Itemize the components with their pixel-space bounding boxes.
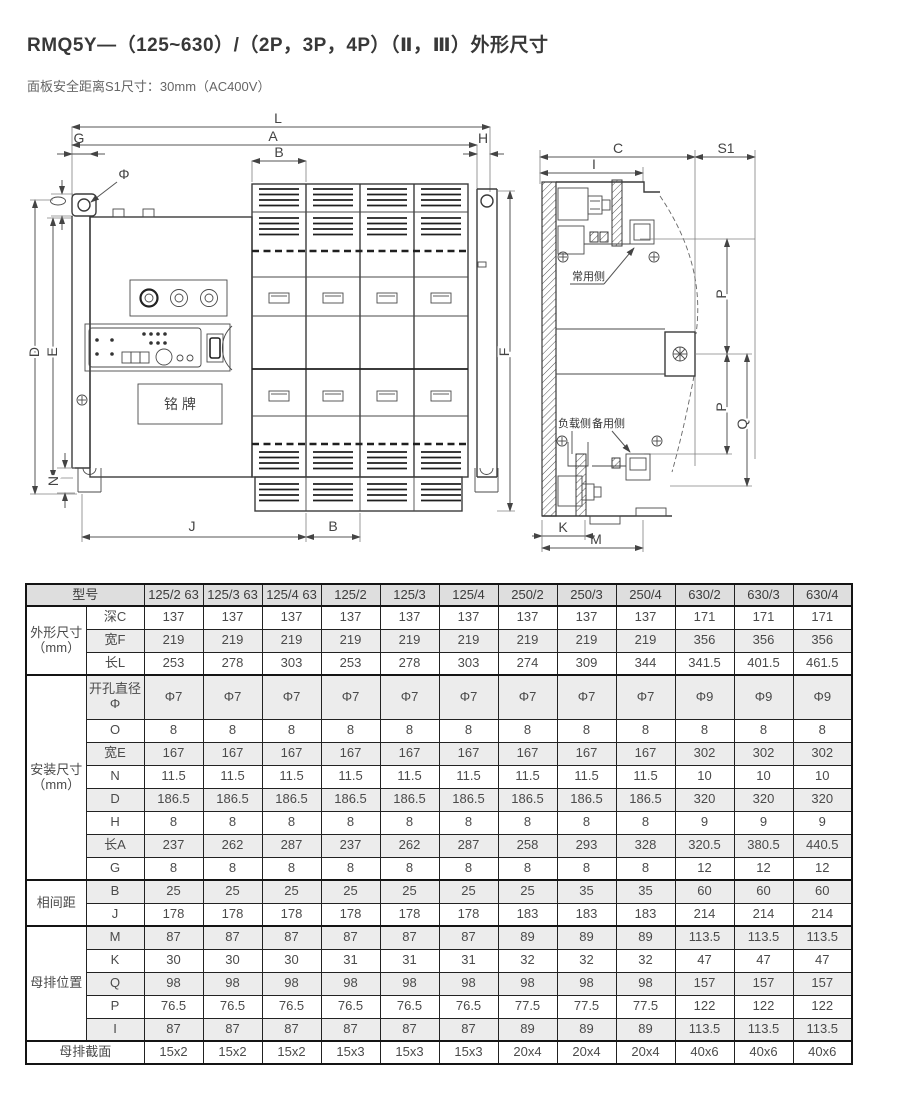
model-column-header: 250/3 xyxy=(557,584,616,606)
value-cell: 186.5 xyxy=(616,788,675,811)
value-cell: 214 xyxy=(734,903,793,926)
value-cell: 89 xyxy=(557,1018,616,1041)
value-cell: 178 xyxy=(321,903,380,926)
value-cell: 171 xyxy=(675,606,734,629)
value-cell: 122 xyxy=(675,995,734,1018)
value-cell: 87 xyxy=(262,926,321,949)
front-view-drawing: L A G H B Φ xyxy=(27,112,512,560)
value-cell: 87 xyxy=(380,1018,439,1041)
value-cell: 87 xyxy=(203,926,262,949)
dim-label-D: D xyxy=(26,347,42,357)
dim-label-H: H xyxy=(478,130,488,146)
value-cell: Φ9 xyxy=(734,675,793,719)
value-cell: 113.5 xyxy=(734,1018,793,1041)
value-cell: 11.5 xyxy=(557,765,616,788)
value-cell: 8 xyxy=(557,811,616,834)
row-label: Q xyxy=(86,972,144,995)
value-cell: 20x4 xyxy=(498,1041,557,1064)
table-row: D186.5186.5186.5186.5186.5186.5186.5186.… xyxy=(26,788,852,811)
model-column-header: 125/4 63 xyxy=(262,584,321,606)
value-cell: 186.5 xyxy=(498,788,557,811)
value-cell: 32 xyxy=(616,949,675,972)
model-column-header: 125/2 63 xyxy=(144,584,203,606)
row-label: 宽F xyxy=(86,629,144,652)
value-cell: Φ7 xyxy=(557,675,616,719)
value-cell: 137 xyxy=(557,606,616,629)
value-cell: 8 xyxy=(144,857,203,880)
value-cell: 35 xyxy=(557,880,616,903)
row-label: N xyxy=(86,765,144,788)
value-cell: 219 xyxy=(203,629,262,652)
value-cell: 98 xyxy=(262,972,321,995)
dim-label-phi: Φ xyxy=(118,166,129,182)
value-cell: 11.5 xyxy=(498,765,557,788)
table-row: H888888888999 xyxy=(26,811,852,834)
value-cell: 31 xyxy=(321,949,380,972)
value-cell: 167 xyxy=(203,742,262,765)
value-cell: 178 xyxy=(144,903,203,926)
page: RMQ5Y—（125~630）/（2P，3P，4P）（Ⅱ，Ⅲ）外形尺寸 面板安全… xyxy=(0,0,900,1105)
value-cell: 253 xyxy=(321,652,380,675)
value-cell: 20x4 xyxy=(616,1041,675,1064)
value-cell: 8 xyxy=(262,811,321,834)
value-cell: 20x4 xyxy=(557,1041,616,1064)
value-cell: 98 xyxy=(498,972,557,995)
row-label: M xyxy=(86,926,144,949)
value-cell: 167 xyxy=(557,742,616,765)
value-cell: 11.5 xyxy=(380,765,439,788)
value-cell: 76.5 xyxy=(321,995,380,1018)
table-row: J178178178178178178183183183214214214 xyxy=(26,903,852,926)
value-cell: 15x2 xyxy=(144,1041,203,1064)
value-cell: 11.5 xyxy=(616,765,675,788)
table-row: 母排位置M878787878787898989113.5113.5113.5 xyxy=(26,926,852,949)
value-cell: 8 xyxy=(203,719,262,742)
value-cell: 178 xyxy=(380,903,439,926)
value-cell: 8 xyxy=(321,857,380,880)
value-cell: 10 xyxy=(793,765,852,788)
value-cell: 320 xyxy=(734,788,793,811)
value-cell: 31 xyxy=(380,949,439,972)
side-view-drawing: C S1 I 常用侧 xyxy=(532,124,900,554)
table-row: 相间距B252525252525253535606060 xyxy=(26,880,852,903)
value-cell: 25 xyxy=(262,880,321,903)
dim-label-B-top: B xyxy=(274,144,283,160)
value-cell: 113.5 xyxy=(675,926,734,949)
table-row: K303030313131323232474747 xyxy=(26,949,852,972)
value-cell: 87 xyxy=(380,926,439,949)
footer-label: 母排截面 xyxy=(26,1041,144,1064)
value-cell: 380.5 xyxy=(734,834,793,857)
value-cell: 25 xyxy=(203,880,262,903)
row-label: 长A xyxy=(86,834,144,857)
value-cell: 171 xyxy=(793,606,852,629)
value-cell: 87 xyxy=(321,926,380,949)
value-cell: 122 xyxy=(734,995,793,1018)
value-cell: 183 xyxy=(557,903,616,926)
value-cell: 8 xyxy=(262,719,321,742)
value-cell: 12 xyxy=(734,857,793,880)
value-cell: 11.5 xyxy=(203,765,262,788)
value-cell: 8 xyxy=(498,719,557,742)
value-cell: 25 xyxy=(498,880,557,903)
value-cell: 237 xyxy=(321,834,380,857)
value-cell: 183 xyxy=(616,903,675,926)
value-cell: 113.5 xyxy=(793,926,852,949)
value-cell: 89 xyxy=(498,926,557,949)
value-cell: 214 xyxy=(793,903,852,926)
value-cell: 89 xyxy=(557,926,616,949)
value-cell: 8 xyxy=(616,811,675,834)
value-cell: 237 xyxy=(144,834,203,857)
value-cell: 8 xyxy=(675,719,734,742)
dim-label-P-upper: P xyxy=(713,289,729,298)
value-cell: 47 xyxy=(675,949,734,972)
value-cell: 302 xyxy=(793,742,852,765)
value-cell: Φ9 xyxy=(793,675,852,719)
value-cell: 113.5 xyxy=(675,1018,734,1041)
row-label: B xyxy=(86,880,144,903)
value-cell: Φ7 xyxy=(616,675,675,719)
table-row: N11.511.511.511.511.511.511.511.511.5101… xyxy=(26,765,852,788)
row-label: H xyxy=(86,811,144,834)
value-cell: 40x6 xyxy=(675,1041,734,1064)
value-cell: 87 xyxy=(262,1018,321,1041)
value-cell: 40x6 xyxy=(734,1041,793,1064)
value-cell: 8 xyxy=(793,719,852,742)
value-cell: 9 xyxy=(734,811,793,834)
value-cell: 77.5 xyxy=(557,995,616,1018)
value-cell: Φ7 xyxy=(144,675,203,719)
value-cell: 167 xyxy=(616,742,675,765)
value-cell: 25 xyxy=(380,880,439,903)
label-load-side: 负载侧 xyxy=(558,416,591,430)
value-cell: 9 xyxy=(675,811,734,834)
value-cell: 8 xyxy=(498,857,557,880)
value-cell: 219 xyxy=(262,629,321,652)
value-cell: 113.5 xyxy=(793,1018,852,1041)
value-cell: 87 xyxy=(439,926,498,949)
model-column-header: 125/3 xyxy=(380,584,439,606)
value-cell: 76.5 xyxy=(203,995,262,1018)
value-cell: Φ7 xyxy=(439,675,498,719)
dim-label-L: L xyxy=(274,110,282,126)
value-cell: 8 xyxy=(557,857,616,880)
model-column-header: 630/4 xyxy=(793,584,852,606)
value-cell: 31 xyxy=(439,949,498,972)
value-cell: Φ7 xyxy=(321,675,380,719)
model-column-header: 125/3 63 xyxy=(203,584,262,606)
value-cell: 219 xyxy=(380,629,439,652)
value-cell: Φ7 xyxy=(262,675,321,719)
value-cell: 32 xyxy=(498,949,557,972)
page-subtitle: 面板安全距离S1尺寸：30mm（AC400V） xyxy=(27,76,270,95)
value-cell: Φ7 xyxy=(498,675,557,719)
table-row: Q989898989898989898157157157 xyxy=(26,972,852,995)
value-cell: 8 xyxy=(380,811,439,834)
value-cell: 186.5 xyxy=(144,788,203,811)
dim-label-G: G xyxy=(74,130,85,146)
value-cell: 98 xyxy=(321,972,380,995)
page-title: RMQ5Y—（125~630）/（2P，3P，4P）（Ⅱ，Ⅲ）外形尺寸 xyxy=(27,30,549,57)
value-cell: 137 xyxy=(380,606,439,629)
value-cell: 320 xyxy=(675,788,734,811)
value-cell: 178 xyxy=(203,903,262,926)
value-cell: 157 xyxy=(675,972,734,995)
value-cell: 122 xyxy=(793,995,852,1018)
value-cell: 76.5 xyxy=(380,995,439,1018)
section-label: 相间距 xyxy=(26,880,86,926)
value-cell: 186.5 xyxy=(262,788,321,811)
value-cell: Φ9 xyxy=(675,675,734,719)
value-cell: 8 xyxy=(439,811,498,834)
value-cell: 87 xyxy=(439,1018,498,1041)
value-cell: 98 xyxy=(144,972,203,995)
value-cell: 8 xyxy=(380,719,439,742)
footer-row: 母排截面15x215x215x215x315x315x320x420x420x4… xyxy=(26,1041,852,1064)
row-label: G xyxy=(86,857,144,880)
row-label: O xyxy=(86,719,144,742)
value-cell: 8 xyxy=(203,857,262,880)
value-cell: 258 xyxy=(498,834,557,857)
dim-label-S1: S1 xyxy=(717,140,734,156)
value-cell: 8 xyxy=(498,811,557,834)
value-cell: 178 xyxy=(262,903,321,926)
value-cell: Φ7 xyxy=(203,675,262,719)
row-label: 深C xyxy=(86,606,144,629)
row-label: J xyxy=(86,903,144,926)
value-cell: 8 xyxy=(439,719,498,742)
value-cell: 89 xyxy=(498,1018,557,1041)
dim-label-F: F xyxy=(496,348,512,357)
value-cell: 8 xyxy=(321,811,380,834)
value-cell: 60 xyxy=(675,880,734,903)
value-cell: 186.5 xyxy=(557,788,616,811)
value-cell: 8 xyxy=(262,857,321,880)
value-cell: 98 xyxy=(380,972,439,995)
label-normal-side: 常用侧 xyxy=(572,270,605,283)
value-cell: 11.5 xyxy=(262,765,321,788)
value-cell: 309 xyxy=(557,652,616,675)
model-column-header: 250/4 xyxy=(616,584,675,606)
model-column-header: 250/2 xyxy=(498,584,557,606)
value-cell: 98 xyxy=(557,972,616,995)
value-cell: 214 xyxy=(675,903,734,926)
value-cell: 12 xyxy=(675,857,734,880)
table-row: 长L253278303253278303274309344341.5401.54… xyxy=(26,652,852,675)
value-cell: 35 xyxy=(616,880,675,903)
row-label: 宽E xyxy=(86,742,144,765)
table-row: G888888888121212 xyxy=(26,857,852,880)
table-row: 安装尺寸（mm）开孔直径ΦΦ7Φ7Φ7Φ7Φ7Φ7Φ7Φ7Φ7Φ9Φ9Φ9 xyxy=(26,675,852,719)
value-cell: 262 xyxy=(380,834,439,857)
value-cell: 356 xyxy=(793,629,852,652)
value-cell: 9 xyxy=(793,811,852,834)
value-cell: 186.5 xyxy=(380,788,439,811)
value-cell: 40x6 xyxy=(793,1041,852,1064)
value-cell: 167 xyxy=(321,742,380,765)
value-cell: 440.5 xyxy=(793,834,852,857)
value-cell: 15x3 xyxy=(439,1041,498,1064)
value-cell: 98 xyxy=(439,972,498,995)
row-label: 开孔直径Φ xyxy=(86,675,144,719)
value-cell: 8 xyxy=(616,857,675,880)
value-cell: 15x3 xyxy=(321,1041,380,1064)
model-header-row: 型号125/2 63125/3 63125/4 63125/2125/3125/… xyxy=(26,584,852,606)
value-cell: 167 xyxy=(262,742,321,765)
value-cell: 253 xyxy=(144,652,203,675)
value-cell: 10 xyxy=(675,765,734,788)
dim-label-N: N xyxy=(45,476,61,486)
value-cell: 30 xyxy=(262,949,321,972)
value-cell: 356 xyxy=(734,629,793,652)
value-cell: 178 xyxy=(439,903,498,926)
value-cell: 401.5 xyxy=(734,652,793,675)
dim-label-I: I xyxy=(592,156,596,172)
value-cell: 302 xyxy=(675,742,734,765)
value-cell: 30 xyxy=(203,949,262,972)
value-cell: 137 xyxy=(498,606,557,629)
model-column-header: 630/2 xyxy=(675,584,734,606)
table-row: 外形尺寸（mm）深C137137137137137137137137137171… xyxy=(26,606,852,629)
dim-label-P-lower: P xyxy=(713,402,729,411)
dim-label-M: M xyxy=(590,531,602,547)
value-cell: 219 xyxy=(557,629,616,652)
value-cell: 60 xyxy=(734,880,793,903)
row-label: 长L xyxy=(86,652,144,675)
table-row: 长A237262287237262287258293328320.5380.54… xyxy=(26,834,852,857)
dim-label-J: J xyxy=(189,518,196,534)
value-cell: 76.5 xyxy=(144,995,203,1018)
model-column-header: 125/2 xyxy=(321,584,380,606)
value-cell: 137 xyxy=(321,606,380,629)
value-cell: 15x3 xyxy=(380,1041,439,1064)
dim-label-E: E xyxy=(44,347,60,356)
dim-label-C: C xyxy=(613,140,623,156)
value-cell: 167 xyxy=(439,742,498,765)
value-cell: 8 xyxy=(321,719,380,742)
value-cell: 10 xyxy=(734,765,793,788)
value-cell: 8 xyxy=(616,719,675,742)
dim-label-A: A xyxy=(268,128,278,144)
value-cell: Φ7 xyxy=(380,675,439,719)
value-cell: 87 xyxy=(321,1018,380,1041)
value-cell: 30 xyxy=(144,949,203,972)
table-row: O888888888888 xyxy=(26,719,852,742)
row-label: D xyxy=(86,788,144,811)
value-cell: 157 xyxy=(793,972,852,995)
value-cell: 356 xyxy=(675,629,734,652)
value-cell: 274 xyxy=(498,652,557,675)
value-cell: 8 xyxy=(557,719,616,742)
table-row: I878787878787898989113.5113.5113.5 xyxy=(26,1018,852,1041)
section-label: 母排位置 xyxy=(26,926,86,1041)
value-cell: 76.5 xyxy=(439,995,498,1018)
value-cell: 11.5 xyxy=(439,765,498,788)
value-cell: 8 xyxy=(439,857,498,880)
value-cell: 25 xyxy=(321,880,380,903)
value-cell: 15x2 xyxy=(262,1041,321,1064)
value-cell: 25 xyxy=(439,880,498,903)
value-cell: 344 xyxy=(616,652,675,675)
value-cell: 293 xyxy=(557,834,616,857)
value-cell: 87 xyxy=(144,1018,203,1041)
dim-label-Q: Q xyxy=(734,418,750,429)
value-cell: 157 xyxy=(734,972,793,995)
value-cell: 183 xyxy=(498,903,557,926)
value-cell: 77.5 xyxy=(498,995,557,1018)
value-cell: 89 xyxy=(616,926,675,949)
dim-label-K: K xyxy=(558,519,568,535)
value-cell: 171 xyxy=(734,606,793,629)
value-cell: 461.5 xyxy=(793,652,852,675)
table-row: 宽E167167167167167167167167167302302302 xyxy=(26,742,852,765)
value-cell: 287 xyxy=(439,834,498,857)
section-label: 安装尺寸（mm） xyxy=(26,675,86,880)
table-row: P76.576.576.576.576.576.577.577.577.5122… xyxy=(26,995,852,1018)
value-cell: 320.5 xyxy=(675,834,734,857)
value-cell: 25 xyxy=(144,880,203,903)
value-cell: 186.5 xyxy=(321,788,380,811)
value-cell: 137 xyxy=(144,606,203,629)
value-cell: 186.5 xyxy=(203,788,262,811)
value-cell: 167 xyxy=(380,742,439,765)
nameplate-text: 铭 牌 xyxy=(164,396,196,412)
value-cell: 11.5 xyxy=(321,765,380,788)
value-cell: 11.5 xyxy=(144,765,203,788)
value-cell: 137 xyxy=(203,606,262,629)
value-cell: 12 xyxy=(793,857,852,880)
value-cell: 278 xyxy=(203,652,262,675)
value-cell: 87 xyxy=(203,1018,262,1041)
value-cell: 219 xyxy=(616,629,675,652)
value-cell: 219 xyxy=(144,629,203,652)
model-column-header: 630/3 xyxy=(734,584,793,606)
value-cell: 87 xyxy=(144,926,203,949)
value-cell: 47 xyxy=(734,949,793,972)
section-label: 外形尺寸（mm） xyxy=(26,606,86,675)
value-cell: 186.5 xyxy=(439,788,498,811)
value-cell: 8 xyxy=(203,811,262,834)
value-cell: 76.5 xyxy=(262,995,321,1018)
value-cell: 303 xyxy=(439,652,498,675)
value-cell: 77.5 xyxy=(616,995,675,1018)
value-cell: 302 xyxy=(734,742,793,765)
value-cell: 60 xyxy=(793,880,852,903)
row-label: I xyxy=(86,1018,144,1041)
value-cell: 47 xyxy=(793,949,852,972)
value-cell: 15x2 xyxy=(203,1041,262,1064)
value-cell: 8 xyxy=(380,857,439,880)
table-row: 宽F219219219219219219219219219356356356 xyxy=(26,629,852,652)
row-label: P xyxy=(86,995,144,1018)
value-cell: 167 xyxy=(498,742,557,765)
value-cell: 137 xyxy=(616,606,675,629)
value-cell: 303 xyxy=(262,652,321,675)
value-cell: 278 xyxy=(380,652,439,675)
label-backup-side: 备用侧 xyxy=(592,416,625,430)
value-cell: 287 xyxy=(262,834,321,857)
value-cell: 219 xyxy=(439,629,498,652)
value-cell: 98 xyxy=(203,972,262,995)
dim-label-B-bottom: B xyxy=(328,518,337,534)
value-cell: 89 xyxy=(616,1018,675,1041)
value-cell: 8 xyxy=(144,811,203,834)
value-cell: 219 xyxy=(498,629,557,652)
value-cell: 98 xyxy=(616,972,675,995)
row-label: K xyxy=(86,949,144,972)
model-header-cell: 型号 xyxy=(26,584,144,606)
